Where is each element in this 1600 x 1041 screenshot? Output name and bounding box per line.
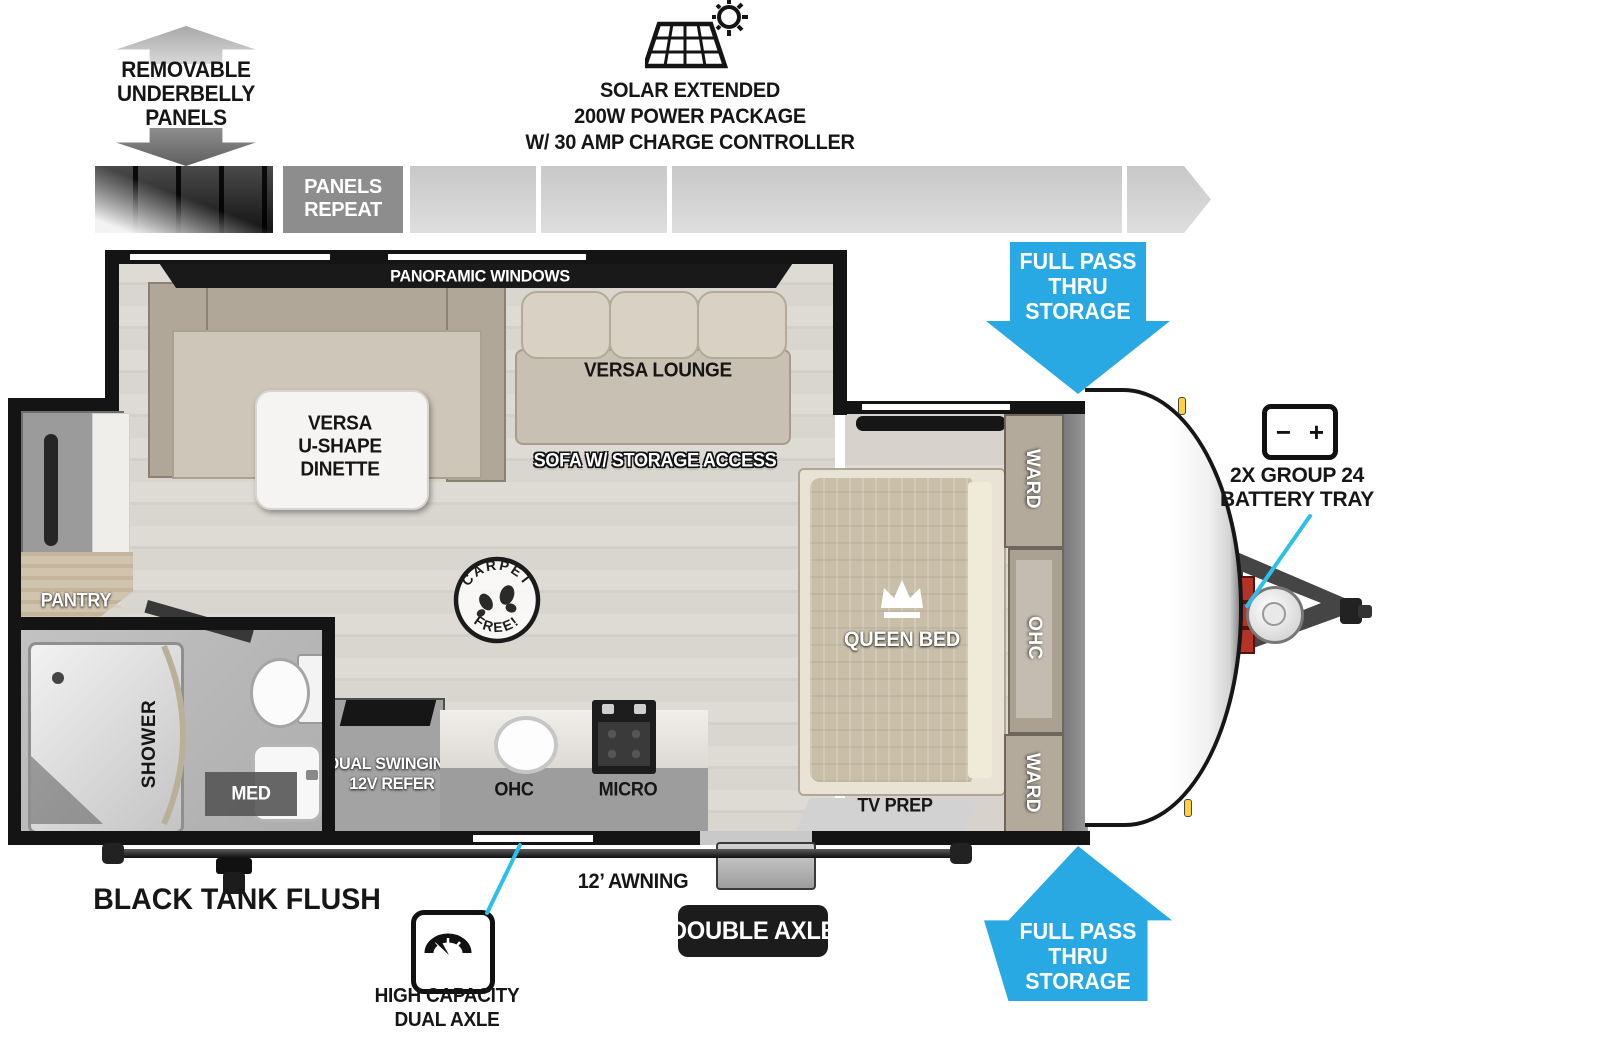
stove-knob <box>634 704 646 714</box>
toilet-bowl <box>250 658 310 728</box>
panels-repeat-label: PANELS REPEAT <box>304 176 382 222</box>
step-wall <box>833 250 847 415</box>
med-label: MED <box>231 783 270 804</box>
pantry-column <box>92 413 130 553</box>
bathroom-top-wall <box>8 617 335 630</box>
underbelly-label: REMOVABLE UNDERBELLY PANELS <box>117 58 255 130</box>
awning-end-cap <box>950 843 972 864</box>
rv-floorplan-diagram: REMOVABLE UNDERBELLY PANELS PANELS REPEA… <box>0 0 1600 1041</box>
underbelly-down-arrow-icon <box>116 128 256 166</box>
bedroom-window <box>856 416 1006 431</box>
panel-segment <box>541 166 667 233</box>
underbelly-panel-photo <box>95 166 273 233</box>
kitchen-counter-top <box>440 710 708 768</box>
panoramic-windows-label: PANORAMIC WINDOWS <box>390 266 570 285</box>
stove-grate <box>598 722 650 766</box>
refrigerator-top <box>340 700 436 726</box>
top-wall-window <box>130 254 330 260</box>
battery-icon: − + <box>1262 404 1338 460</box>
wardrobe-bottom-label: WARD <box>1021 753 1043 813</box>
awning-label: 12’ AWNING <box>578 870 689 894</box>
solar-panel-sun-icon <box>645 0 749 72</box>
axle-location-marker <box>473 835 593 842</box>
dinette-label: VERSA U-SHAPE DINETTE <box>298 413 382 482</box>
full-pass-thru-top-arrow: FULL PASS THRU STORAGE <box>986 242 1170 394</box>
top-wall-window <box>388 254 586 260</box>
high-capacity-label: HIGH CAPACITY DUAL AXLE <box>375 984 520 1032</box>
full-pass-thru-bottom-label: FULL PASS THRU STORAGE <box>991 919 1166 994</box>
bathroom-right-wall <box>322 617 335 845</box>
sofa-cushion <box>697 291 787 359</box>
panel-segment <box>410 166 536 233</box>
refer-label: DUAL SWINGING 12V REFER <box>328 754 457 794</box>
propane-tank-valve <box>1262 602 1286 626</box>
solar-package-label: SOLAR EXTENDED 200W POWER PACKAGE W/ 30 … <box>525 78 854 156</box>
black-tank-flush-label: BLACK TANK FLUSH <box>93 883 381 917</box>
front-cap <box>1085 388 1243 827</box>
sofa-storage-label: SOFA W/ STORAGE ACCESS <box>534 450 777 471</box>
sofa-cushion <box>521 291 611 359</box>
tv-prep-label: TV PREP <box>857 795 932 816</box>
pantry-handle <box>44 434 58 546</box>
upper-left-wall <box>105 250 119 411</box>
stove-knob <box>602 704 614 714</box>
clearance-light <box>1178 397 1186 415</box>
hitch-coupler-tip <box>1358 605 1372 618</box>
clearance-light <box>1184 799 1192 817</box>
panel-arrow-segment <box>1127 166 1211 233</box>
rear-bump-top-wall <box>8 398 119 411</box>
battery-minus-sign: − <box>1276 417 1291 448</box>
shower-drain <box>52 672 64 684</box>
micro-label: MICRO <box>599 779 658 800</box>
crown-icon <box>873 576 931 622</box>
queen-bed-label: QUEEN BED <box>844 628 960 652</box>
battery-tray-label: 2X GROUP 24 BATTERY TRAY <box>1220 464 1374 512</box>
high-capacity-scale-icon <box>411 910 495 994</box>
versa-lounge-label: VERSA LOUNGE <box>584 360 732 383</box>
carpet-free-badge: CARPET FREE! <box>452 555 542 645</box>
wardrobe-top-label: WARD <box>1021 449 1043 509</box>
bathroom-faucet <box>306 770 318 780</box>
full-pass-thru-bottom-arrow: FULL PASS THRU STORAGE <box>984 846 1172 1001</box>
bedroom-ohc-label: OHC <box>1023 616 1045 660</box>
awning-end-cap <box>102 843 124 864</box>
double-axle-label: DOUBLE AXLE <box>670 917 836 945</box>
panel-segment <box>672 166 1122 233</box>
awning-rail <box>112 849 970 858</box>
full-pass-thru-top-label: FULL PASS THRU STORAGE <box>992 249 1163 324</box>
kitchen-ohc-label: OHC <box>494 779 533 800</box>
battery-plus-sign: + <box>1309 417 1324 448</box>
bedroom-top-wall-window <box>862 404 1010 410</box>
kitchen-sink <box>494 716 558 774</box>
shower-label: SHOWER <box>139 700 161 789</box>
kitchen-counter-front <box>440 768 708 832</box>
pantry-label: PANTRY <box>41 590 111 611</box>
sofa-cushion <box>609 291 699 359</box>
queen-bed-pillow <box>968 482 992 778</box>
